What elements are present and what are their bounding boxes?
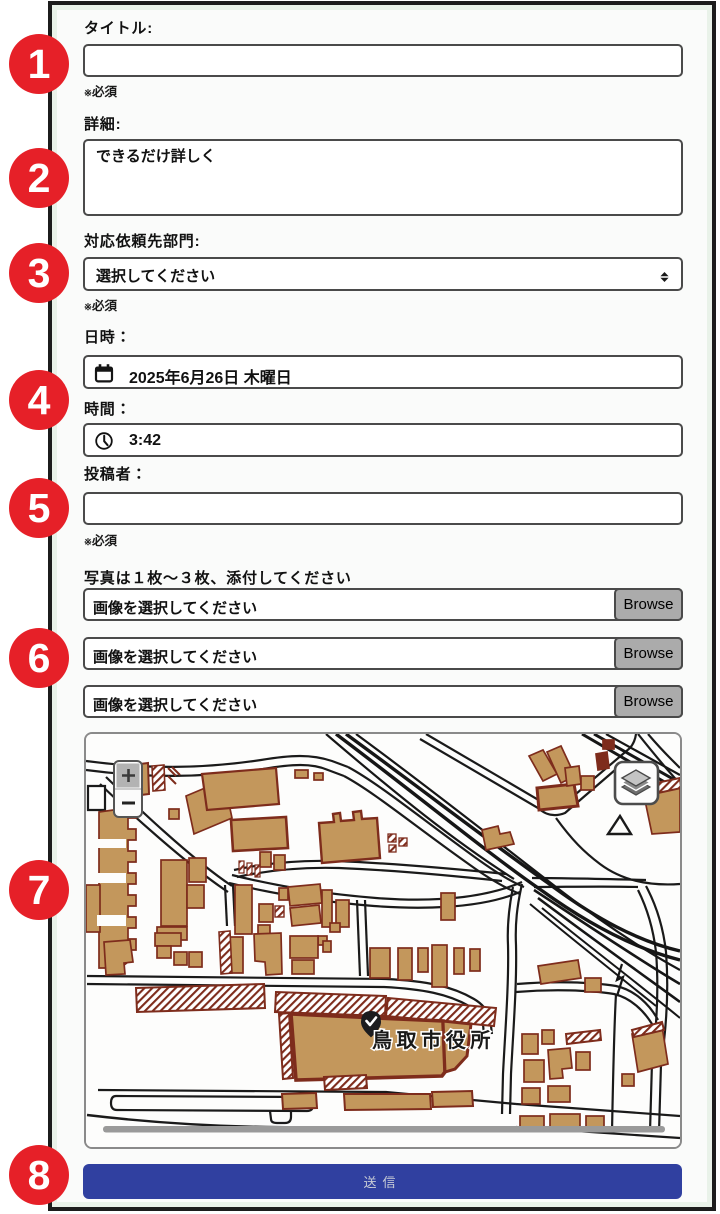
svg-text:鳥取市役所: 鳥取市役所 xyxy=(372,1028,495,1052)
